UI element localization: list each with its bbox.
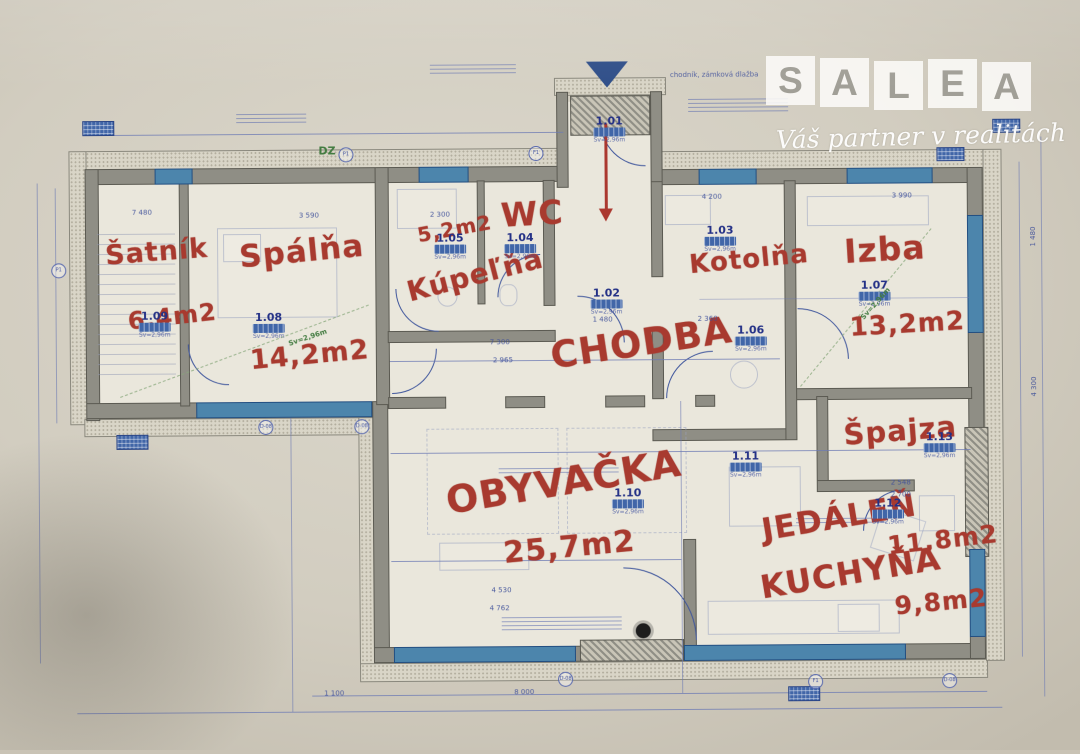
dim-right-b: 4 300	[1030, 376, 1038, 396]
wall-vestibule-left	[556, 92, 569, 188]
entrance-triangle-icon	[586, 61, 628, 87]
dim-line-left	[37, 184, 41, 664]
dim-line-left-2	[55, 188, 58, 423]
room-number-1-05: 1.05Sv=2,96m	[427, 232, 473, 260]
wall-kotolna-izba	[784, 180, 798, 440]
annotation-sidewalk: chodník, zámková dlažba	[670, 70, 759, 79]
dim-top-izba: 3 990	[892, 191, 912, 199]
window-izba-east	[967, 215, 984, 333]
wc-toilet	[499, 284, 517, 306]
room-number-1-06: 1.06Sv=2,96m	[728, 324, 774, 352]
logo-letter-box: A	[982, 62, 1031, 111]
kotolna-boiler	[730, 360, 758, 388]
dim-bottom-a: 1 100	[324, 689, 344, 697]
logo-letter-box: A	[820, 58, 869, 107]
logo-letter-box: S	[766, 56, 815, 105]
photographed-floor-plan: D-08 D-08 P1 F1 D-08 F1 D-08 P1 Šatník 6…	[0, 0, 1080, 750]
window-kitchen-south	[684, 643, 906, 661]
room-number-1-08: 1.08Sv=2,96m	[246, 312, 292, 340]
dim-top-spalna: 3 590	[299, 212, 319, 220]
room-number-1-11: 1.11Sv=2,96m	[723, 450, 769, 478]
salea-logo: S A L E A	[766, 56, 1031, 111]
window-izba-north	[847, 167, 933, 184]
marker-circle-2: D-08	[354, 419, 369, 434]
wall-vestibule-right	[650, 91, 663, 187]
dim-chodba-b: 7 300	[490, 338, 510, 346]
wall-chodba-liv-2	[505, 396, 545, 408]
dim-line-top	[83, 132, 563, 136]
room-number-1-04: 1.04Sv=2,96m	[497, 232, 543, 260]
room-number-1-01: 1.01Sv=2,96m	[586, 115, 632, 143]
dim-line-right	[1019, 162, 1023, 657]
kitchen-stove	[838, 604, 880, 632]
wall-kotolna-left-a	[651, 181, 664, 277]
dim-line-bottom	[77, 707, 1002, 714]
marker-circle-7: D-08	[942, 673, 957, 688]
room-number-1-03: 1.03Sv=2,96m	[697, 225, 743, 253]
room-number-1-02: 1.02Sv=2,96m	[583, 287, 629, 315]
dim-liv-b: 4 762	[490, 604, 510, 612]
dim-chodba-a: 1 480	[593, 315, 613, 323]
dim-chodba-c: 2 965	[493, 356, 513, 364]
annotation-block-bottom	[502, 616, 622, 631]
window-kupelna-north	[419, 166, 469, 182]
dim-line-bottom-inner	[312, 691, 987, 697]
window-kotolna-north	[699, 168, 757, 184]
dim-line-right-2	[1040, 136, 1045, 696]
pump-symbol-icon	[636, 623, 651, 638]
annotation-dz: DZ	[318, 144, 335, 157]
room-number-1-10: 1.10Sv=2,96m	[605, 487, 651, 515]
logo-letter-box: E	[928, 59, 977, 108]
label-wc: WC	[500, 192, 565, 235]
dim-spajza-a: 2 548	[891, 478, 911, 486]
dim-bottom-b: 8 000	[514, 688, 534, 696]
dim-top-satnik: 7 480	[132, 209, 152, 217]
window-satnik-north	[155, 168, 193, 184]
marker-circle-8: P1	[51, 263, 66, 278]
room-number-1-13: 1.13Sv=2,96m	[916, 431, 962, 459]
wall-spajza-west	[816, 396, 829, 492]
wall-chodba-liv-3	[605, 395, 645, 407]
marker-circle-3: P1	[338, 147, 353, 162]
logo-letter-box: L	[874, 61, 923, 110]
room-number-1-12: 1.12Sv=2,96m	[865, 497, 911, 525]
wall-chodba-liv-1	[388, 397, 446, 409]
dim-spajza-b: 2 700	[891, 490, 911, 498]
dim-liv-a: 4 530	[491, 586, 511, 594]
label-izba: Izba	[843, 227, 927, 271]
marker-circle-5: D-08	[558, 672, 573, 687]
terrace-door	[580, 639, 684, 662]
marker-circle-1: D-08	[258, 420, 273, 435]
dim-top-kotolna: 4 200	[702, 193, 722, 201]
annotation-block-top	[430, 64, 516, 77]
marker-circle-6: F1	[808, 674, 823, 689]
salea-watermark: S A L E A Váš partner v realitách	[766, 56, 1031, 111]
ext-line-1	[290, 418, 293, 712]
window-spalna-south	[196, 401, 372, 418]
level-tag-topleft	[82, 121, 114, 136]
level-tag-bottomleft	[116, 435, 148, 450]
marker-circle-4: F1	[528, 146, 543, 161]
wall-living-west	[372, 401, 390, 663]
izba-desk	[807, 195, 929, 226]
wall-kupelna-chodba	[388, 330, 556, 343]
window-living-south	[394, 646, 576, 663]
floor-plan-drawing: D-08 D-08 P1 F1 D-08 F1 D-08 P1 Šatník 6…	[0, 0, 1080, 754]
dim-izba-l: 2 360	[698, 315, 718, 323]
dim-kupelna: 2 300	[430, 211, 450, 219]
room-number-1-09: 1.09Sv=2,96m	[132, 311, 178, 339]
dim-right-a: 1 480	[1029, 226, 1037, 246]
annotation-block-topleft	[236, 114, 306, 124]
wall-spalna-kupelna	[375, 167, 391, 405]
